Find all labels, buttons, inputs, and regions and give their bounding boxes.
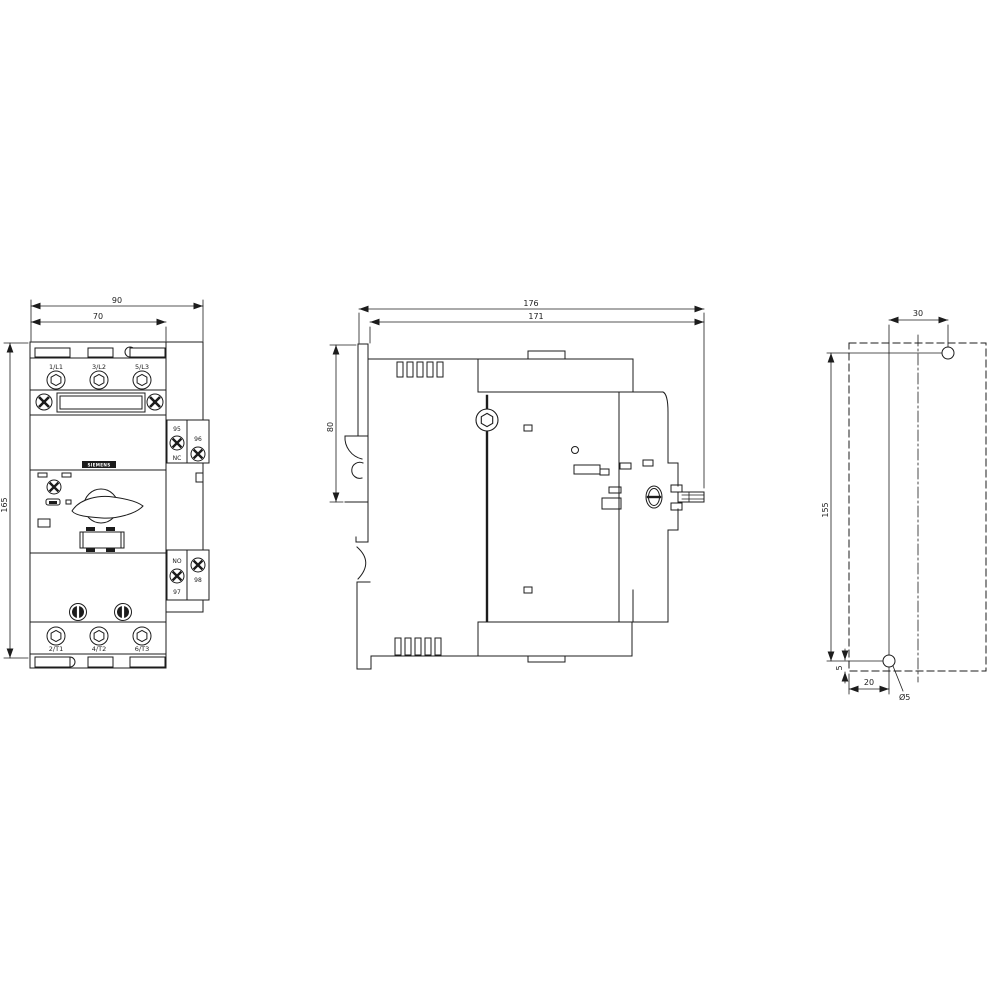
hole-dia-leader [893,666,903,691]
bottom-terminal-covers [35,657,165,667]
aux-contact-block-bottom: NO 97 98 [167,550,209,600]
dim-165: 165 [0,497,9,512]
label-plate-row [36,393,163,412]
terminal-label-3L2: 3/L2 [92,363,106,371]
front-view: 1/L1 3/L2 5/L3 SIEMENS [0,296,209,668]
line-terminals: 1/L1 3/L2 5/L3 [47,363,151,389]
terminal-label-5L3: 5/L3 [135,363,149,371]
hex-terminal-screw-icon [47,627,65,645]
aux-screw-icon [170,569,184,583]
side-outline [357,344,678,669]
control-section [38,473,143,552]
reset-button-icon [47,480,61,494]
slotted-screw-icon [36,394,52,410]
hex-terminal-screw-icon [90,627,108,645]
black-screw-icon [70,604,87,621]
dim-155: 155 [821,502,830,517]
mounting-hole-bottom [883,655,895,667]
terminal-lug [671,485,704,510]
aux-screw-icon [191,447,205,461]
dim-90: 90 [112,296,122,305]
drilling-plan: 30 155 5 20 Ø5 [821,309,986,702]
terminal-label-2T1: 2/T1 [49,645,63,653]
vent-slots-bottom [395,638,441,655]
terminal-label-4T2: 4/T2 [92,645,106,653]
load-terminals: 2/T1 4/T2 6/T3 [47,627,151,653]
dimension-drawing: 1/L1 3/L2 5/L3 SIEMENS [0,0,1000,1000]
din-rail-clip [345,436,368,579]
slotted-screw-icon [147,394,163,410]
aux-label-96: 96 [194,436,202,443]
aux-label-98: 98 [194,577,202,584]
aux-label-97: 97 [173,589,181,596]
dim-176: 176 [523,299,538,308]
hex-terminal-screw-icon [133,371,151,389]
aux-screw-icon [191,558,205,572]
mounting-hole-top [942,347,954,359]
test-button-icon [646,486,662,508]
handle-base [80,527,124,552]
hole-diameter-label: Ø5 [899,692,910,702]
terminal-label-6T3: 6/T3 [135,645,149,653]
dim-171: 171 [528,312,543,321]
brand-plate: SIEMENS [82,461,116,468]
aux-contact-block-top: 95 NC 96 [167,420,209,463]
device-outline-dashed [849,343,986,671]
dim-30: 30 [913,309,923,318]
rotary-handle [72,489,143,523]
hex-terminal-screw-icon [133,627,151,645]
drilling-dimensions: 30 155 5 20 Ø5 [821,309,948,702]
top-terminal-covers [35,347,165,357]
terminal-label-1L1: 1/L1 [49,363,63,371]
side-details [476,396,704,621]
aux-screw-icon [170,436,184,450]
lower-screws [70,604,132,621]
hex-screw-side-icon [476,409,498,431]
dim-5: 5 [835,665,844,670]
aux-label-95: 95 [173,426,181,433]
hex-terminal-screw-icon [47,371,65,389]
black-screw-icon [115,604,132,621]
dim-70: 70 [93,312,103,321]
aux-label-no: NO [172,558,181,565]
vent-slots-top [397,362,443,377]
hex-terminal-screw-icon [90,371,108,389]
aux-slot [196,473,203,482]
side-dimensions: 176 171 80 [326,299,704,502]
dimension-drawing-page: 1/L1 3/L2 5/L3 SIEMENS [0,0,1000,1000]
brand-plate-text: SIEMENS [87,463,110,468]
dim-80: 80 [326,422,335,432]
aux-label-nc: NC [173,455,182,462]
side-view: 176 171 80 [326,299,704,669]
dim-20: 20 [864,678,874,687]
